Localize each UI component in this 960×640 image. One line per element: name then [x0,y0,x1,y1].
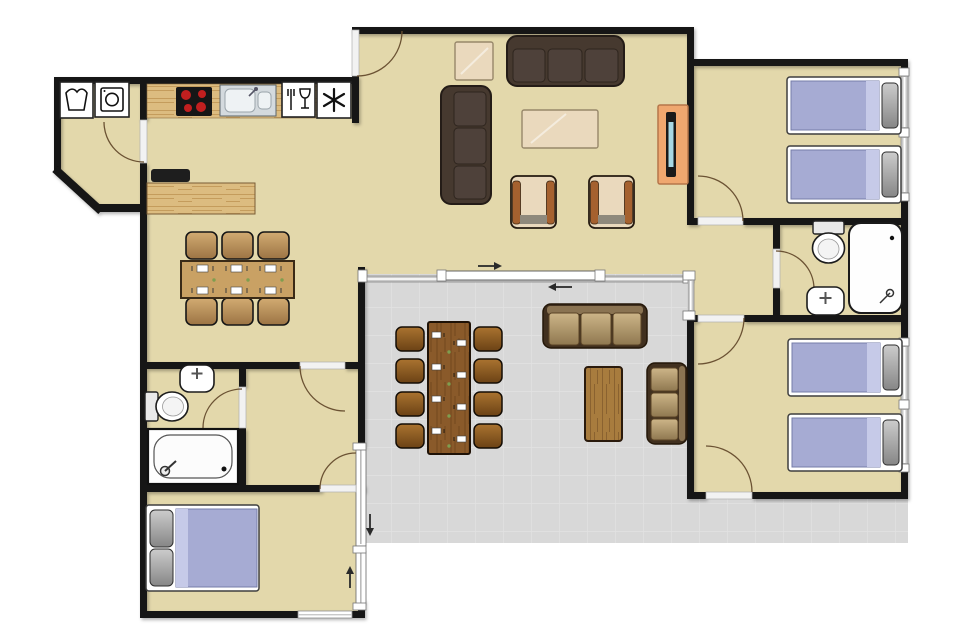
stove-icon [176,87,212,116]
washbasin-icon [180,365,214,392]
washbasin-icon [807,287,844,315]
outdoor-chair [396,327,424,351]
outdoor-chair [396,392,424,416]
pillow [150,549,173,586]
bathroom-east-door [773,249,780,288]
sliding-door-panel [441,271,598,280]
outdoor-chair [474,424,502,448]
bedroom-se-terrace-door [706,492,752,499]
single-bed [787,77,901,134]
bedroom-sw-door [320,485,356,492]
outdoor-sofa-horizontal [543,304,647,348]
double-bed [146,505,259,591]
kitchen [147,82,351,118]
single-bed [788,414,902,471]
hall-west-door [300,362,345,369]
single-bed [787,146,901,203]
dining-chair [222,232,253,259]
dining-chair [258,232,289,259]
window-glass-line [298,614,352,615]
countertop-appliance [151,169,190,182]
sofa-three-seat-vertical [441,86,491,204]
pillow [882,83,898,128]
bathroom-west-door [239,387,246,428]
bedroom-ne-door [698,217,743,225]
single-bed [788,339,902,396]
toilet-icon [813,221,845,263]
shower-icon [849,223,902,313]
sofa-three-seat [507,36,624,86]
outdoor-chair [396,359,424,383]
laundry-tub-box [60,82,93,118]
pillow [883,420,899,465]
sideboard [147,183,255,214]
utility-nook-door [140,120,147,163]
floor-plan-canvas [0,0,960,640]
outdoor-coffee-table [585,367,622,441]
bedroom-south-west [146,505,259,591]
outdoor-chair [396,424,424,448]
cutlery-glass-box [282,82,315,117]
utility-nook [60,82,129,118]
toilet-icon [145,392,188,421]
pillow [883,345,899,390]
dining-chair [258,298,289,325]
dining-chair [222,298,253,325]
pillow [150,510,173,547]
outdoor-chair [474,392,502,416]
dining-chair [186,232,217,259]
bathtub-icon [148,429,238,484]
entrance-door [352,30,359,76]
armchair [511,176,556,228]
outdoor-sofa-vertical [647,363,687,444]
outdoor-chair [474,327,502,351]
sink-icon [220,85,276,116]
dining-chair [186,298,217,325]
armchair [589,176,634,228]
outdoor-chair [474,359,502,383]
bedroom-se-north-door [698,315,744,322]
floor-plan-drawing [0,0,960,640]
tv-unit [658,105,688,184]
pillow [882,152,898,197]
